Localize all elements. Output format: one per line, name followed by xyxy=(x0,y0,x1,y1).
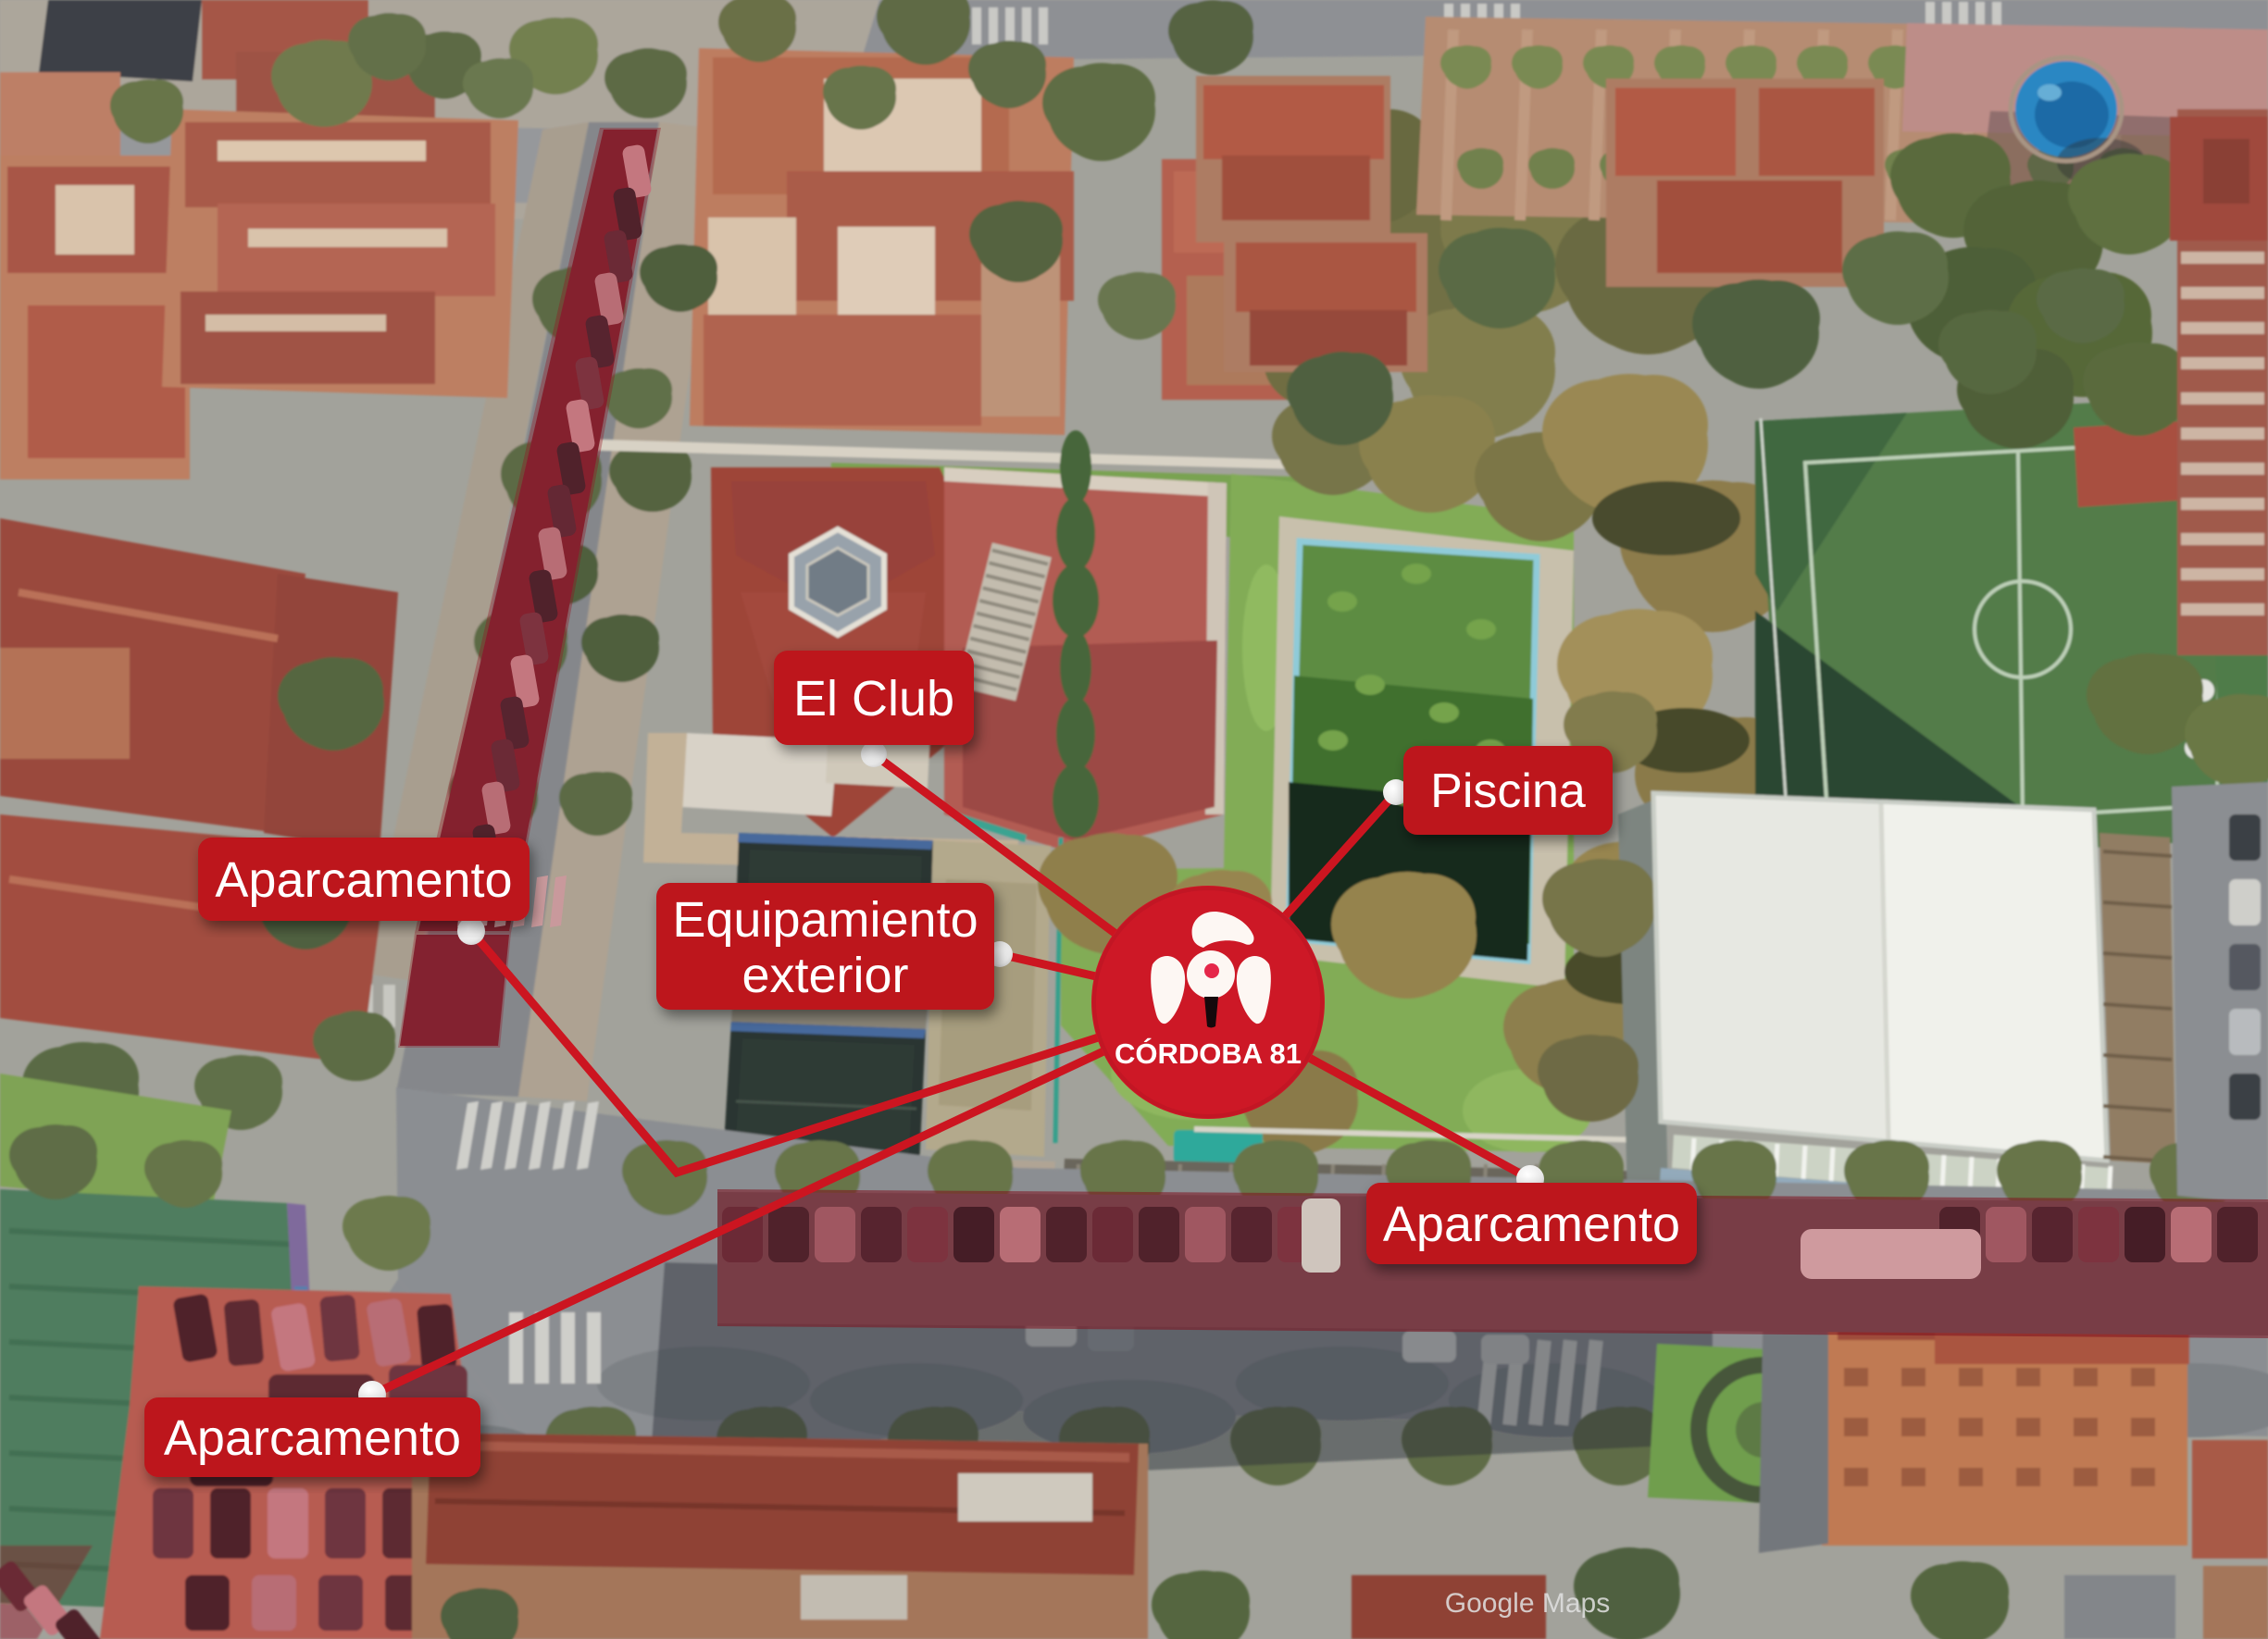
svg-text:Google Maps: Google Maps xyxy=(1445,1588,1610,1619)
svg-text:El Club: El Club xyxy=(793,671,954,726)
svg-text:Piscina: Piscina xyxy=(1430,764,1586,818)
svg-text:Aparcamento: Aparcamento xyxy=(215,852,512,908)
svg-text:Aparcamento: Aparcamento xyxy=(164,1410,461,1466)
svg-text:CÓRDOBA 81: CÓRDOBA 81 xyxy=(1115,1037,1302,1070)
svg-text:Aparcamento: Aparcamento xyxy=(1383,1197,1680,1252)
svg-text:exterior: exterior xyxy=(741,948,908,1003)
svg-text:Equipamiento: Equipamiento xyxy=(672,892,978,948)
